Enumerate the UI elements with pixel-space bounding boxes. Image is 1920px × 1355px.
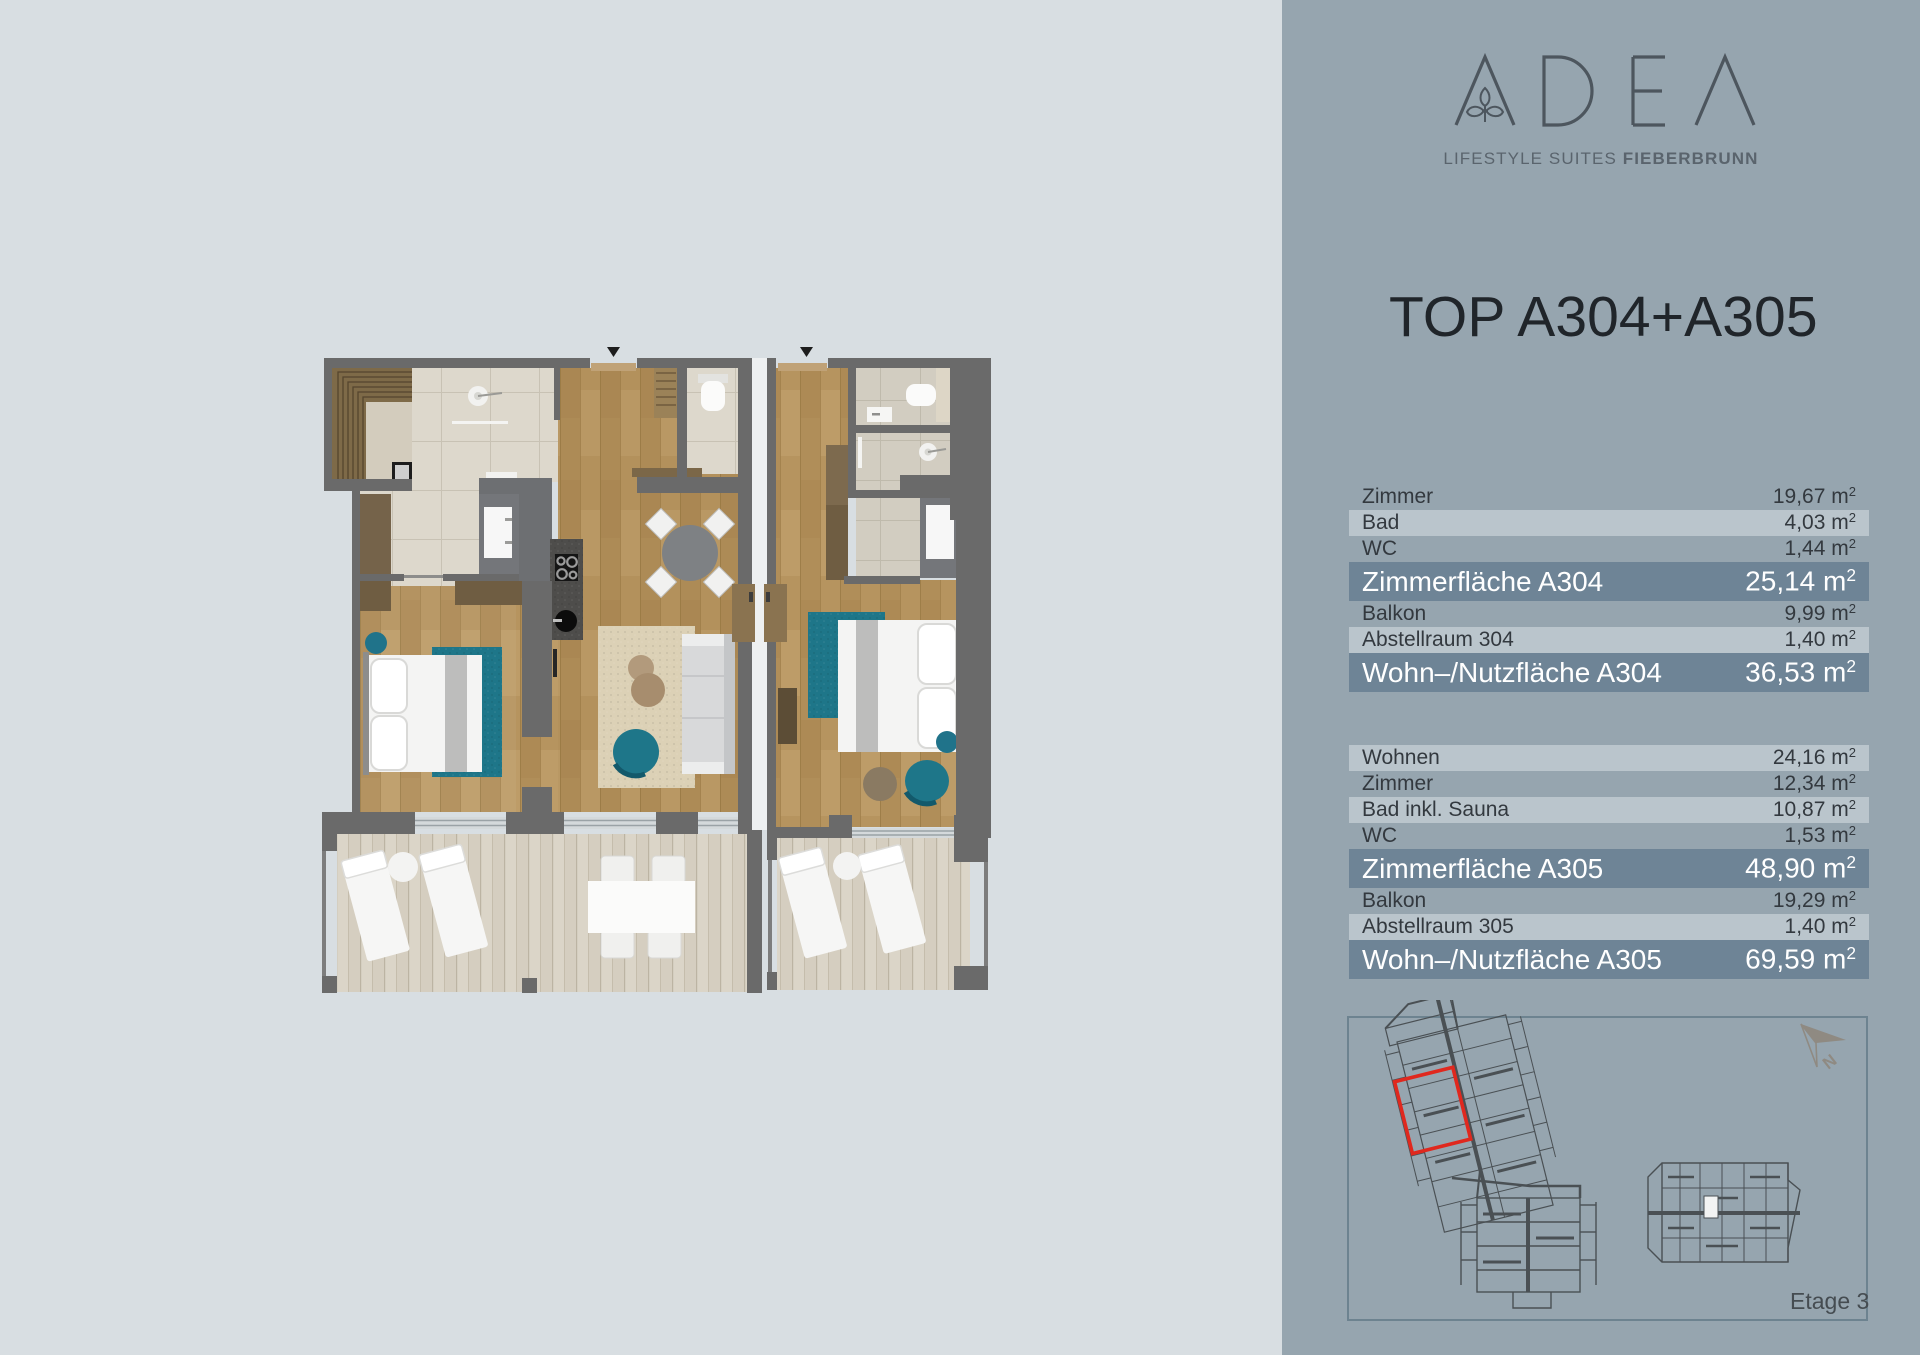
svg-text:N: N [1819, 1051, 1840, 1074]
svg-text:Etage 3: Etage 3 [1790, 1288, 1869, 1314]
